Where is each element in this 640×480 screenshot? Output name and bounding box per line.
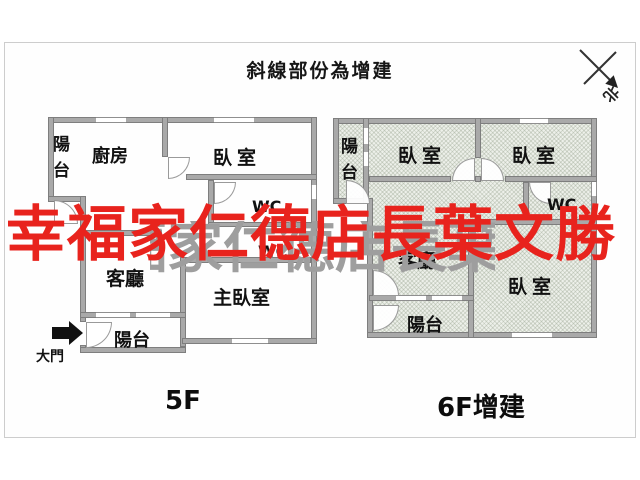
room-label-bedroom: 臥室 (213, 143, 261, 170)
window (363, 152, 369, 166)
window (214, 117, 254, 123)
window (432, 295, 462, 301)
room-label-main-door: 大門 (36, 346, 64, 366)
floor-label-5f: 5F (165, 386, 201, 416)
wall (333, 118, 597, 124)
wall (48, 117, 317, 123)
room-label-balcony-top: 陽台 (52, 132, 71, 185)
room-label-balcony-bottom: 陽台 (407, 311, 443, 337)
floorplan-page: 斜線部份為增建 北 (0, 0, 640, 480)
window (520, 118, 548, 124)
floor-label-6f: 6F增建 (437, 387, 525, 424)
page-title: 斜線部份為增建 (0, 56, 640, 83)
entry-arrow-icon (52, 327, 69, 339)
wall (333, 118, 339, 204)
window (232, 338, 268, 344)
window (96, 312, 130, 318)
wall (369, 176, 451, 182)
window (96, 117, 126, 123)
wall (367, 332, 597, 338)
window (512, 332, 552, 338)
room-label-bedroom-left: 臥室 (398, 141, 446, 168)
window (591, 182, 597, 196)
entry-arrow-head-icon (69, 321, 83, 345)
room-label-kitchen: 廚房 (92, 142, 128, 168)
wall (186, 174, 317, 180)
window (136, 312, 170, 318)
wall (505, 176, 597, 182)
room-label-balcony-top: 陽台 (340, 134, 359, 187)
room-label-balcony-bottom: 陽台 (114, 326, 150, 352)
wall (475, 118, 481, 158)
room-label-bedroom-bottom: 臥室 (508, 272, 556, 299)
window (396, 295, 426, 301)
room-label-master-bedroom: 主臥室 (213, 283, 270, 310)
window (311, 185, 317, 199)
room-label-bedroom-right: 臥室 (512, 141, 560, 168)
watermark-text: 幸福家仁德店長葉文勝 (6, 205, 616, 265)
window (363, 128, 369, 144)
wall (162, 117, 168, 157)
